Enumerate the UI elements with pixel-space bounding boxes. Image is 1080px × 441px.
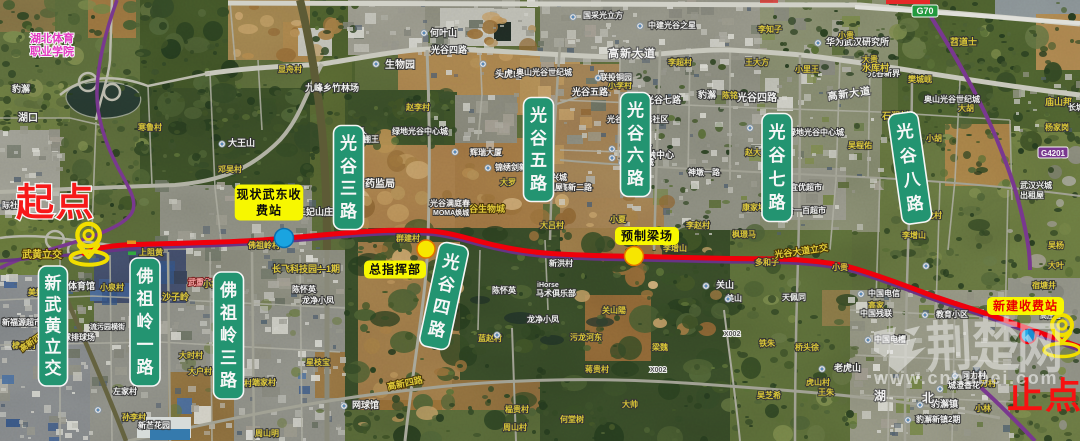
svg-text:大胡: 大胡 [958, 103, 974, 113]
svg-text:交: 交 [45, 358, 62, 378]
svg-text:湖北体育: 湖北体育 [30, 31, 74, 45]
svg-text:大罗: 大罗 [500, 177, 516, 187]
svg-text:星枝宝: 星枝宝 [306, 357, 330, 367]
svg-text:王朱: 王朱 [818, 387, 835, 397]
svg-text:黄: 黄 [45, 316, 62, 336]
svg-text:大户村: 大户村 [188, 366, 212, 376]
svg-text:龙净小凤: 龙净小凤 [301, 295, 334, 305]
svg-text:枫璟马: 枫璟马 [732, 229, 756, 239]
svg-text:显舟村: 显舟村 [278, 64, 302, 74]
svg-text:光谷满庭春: 光谷满庭春 [429, 198, 470, 208]
svg-text:谷: 谷 [627, 124, 645, 143]
svg-text:网球馆: 网球馆 [352, 399, 379, 410]
svg-text:iHorse: iHorse [537, 282, 559, 289]
svg-text:光谷四路: 光谷四路 [430, 44, 468, 55]
svg-text:大叶: 大叶 [1048, 260, 1064, 270]
svg-text:路: 路 [530, 173, 548, 193]
svg-text:光: 光 [768, 122, 786, 142]
svg-text:李赵村: 李赵村 [685, 220, 710, 230]
svg-text:豹澥: 豹澥 [11, 83, 30, 94]
svg-text:上阻黄: 上阻黄 [139, 247, 163, 257]
svg-text:祖: 祖 [136, 289, 154, 309]
svg-text:国采光立方: 国采光立方 [583, 10, 623, 20]
svg-text:李增山: 李增山 [901, 230, 926, 240]
svg-text:职业学院: 职业学院 [30, 44, 74, 58]
svg-text:中国残联: 中国残联 [860, 308, 892, 318]
svg-text:赵李村: 赵李村 [405, 102, 430, 112]
svg-text:北: 北 [922, 390, 934, 405]
svg-text:现状武东收: 现状武东收 [236, 187, 301, 202]
svg-text:一: 一 [137, 335, 154, 354]
svg-text:MOMA焕城: MOMA焕城 [433, 208, 469, 217]
svg-text:谷: 谷 [769, 146, 787, 165]
svg-text:六: 六 [627, 145, 644, 165]
svg-text:小贵: 小贵 [831, 262, 848, 272]
svg-text:端家村: 端家村 [252, 377, 276, 387]
svg-text:谷: 谷 [530, 129, 548, 148]
svg-text:路: 路 [627, 168, 645, 188]
svg-text:光谷四路: 光谷四路 [736, 91, 778, 104]
svg-text:邓吴村: 邓吴村 [217, 164, 242, 174]
svg-text:新: 新 [45, 273, 62, 293]
svg-text:豹澥镇: 豹澥镇 [930, 398, 958, 409]
svg-text:关山: 关山 [716, 279, 734, 290]
svg-text:宜优超市: 宜优超市 [790, 182, 822, 192]
svg-text:三: 三 [220, 349, 237, 368]
svg-text:路: 路 [220, 370, 238, 390]
svg-text:新福源超市: 新福源超市 [2, 317, 42, 327]
svg-text:绿地光谷中心城: 绿地光谷中心城 [392, 126, 448, 136]
svg-text:污龙河东: 污龙河东 [570, 332, 602, 342]
svg-text:九峰乡竹林场: 九峰乡竹林场 [304, 82, 359, 93]
svg-text:宿塘井: 宿塘井 [1032, 280, 1056, 290]
svg-text:联投铜园: 联投铜园 [600, 72, 632, 82]
svg-text:左家村: 左家村 [112, 386, 137, 396]
svg-text:李超村: 李超村 [667, 57, 692, 67]
svg-text:华为武汉研究所: 华为武汉研究所 [826, 36, 889, 47]
svg-text:光: 光 [894, 120, 915, 142]
svg-text:小里王: 小里王 [794, 64, 819, 74]
svg-text:沙子岭: 沙子岭 [162, 291, 189, 302]
svg-text:光: 光 [339, 133, 357, 153]
svg-text:周山明: 周山明 [255, 428, 279, 438]
svg-text:辉瑞大厦: 辉瑞大厦 [470, 147, 503, 157]
svg-text:苕道士: 苕道士 [950, 36, 977, 47]
svg-text:吴芝希: 吴芝希 [757, 390, 781, 400]
svg-text:锦绣剑新: 锦绣剑新 [495, 162, 527, 172]
svg-text:豹澥: 豹澥 [697, 89, 716, 100]
svg-text:豹澥新镇2期: 豹澥新镇2期 [915, 414, 960, 424]
svg-text:路: 路 [137, 357, 155, 377]
svg-text:陈铭: 陈铭 [722, 90, 738, 100]
svg-text:马术俱乐部: 马术俱乐部 [536, 288, 576, 298]
svg-text:岭: 岭 [220, 325, 237, 345]
svg-text:寒鲁村: 寒鲁村 [137, 122, 162, 132]
svg-text:小泉村: 小泉村 [99, 282, 124, 292]
svg-text:武黄立交: 武黄立交 [22, 248, 62, 261]
svg-text:谷: 谷 [340, 157, 358, 176]
svg-text:体育馆: 体育馆 [68, 280, 95, 291]
svg-text:立: 立 [45, 337, 62, 357]
svg-text:预制梁场: 预制梁场 [621, 228, 673, 243]
svg-text:小胡: 小胡 [925, 133, 942, 143]
svg-text:关山陽: 关山陽 [602, 305, 626, 315]
svg-text:陈怀英: 陈怀英 [492, 285, 517, 295]
svg-text:湖口: 湖口 [18, 111, 38, 124]
svg-text:群建村: 群建村 [395, 233, 420, 243]
svg-text:李知子: 李知子 [757, 24, 782, 34]
svg-text:湖: 湖 [874, 388, 886, 403]
svg-text:总指挥部: 总指挥部 [369, 262, 421, 277]
svg-text:周山村: 周山村 [503, 422, 527, 432]
svg-text:中国电信: 中国电信 [868, 288, 900, 298]
svg-text:X002: X002 [650, 367, 666, 374]
svg-text:桥头徐: 桥头徐 [795, 342, 819, 352]
svg-text:老虎山: 老虎山 [833, 362, 861, 373]
svg-text:樊城岘: 樊城岘 [908, 74, 932, 84]
svg-text:武: 武 [45, 294, 62, 314]
svg-text:三: 三 [340, 179, 357, 198]
svg-text:G70: G70 [916, 6, 933, 16]
svg-text:王大方: 王大方 [745, 57, 769, 67]
svg-text:中建光谷之星: 中建光谷之星 [648, 20, 696, 30]
svg-text:出租屋: 出租屋 [1020, 190, 1044, 200]
svg-text:大王山: 大王山 [228, 137, 255, 148]
svg-text:绿地光谷中心城: 绿地光谷中心城 [788, 127, 844, 137]
svg-text:佛: 佛 [219, 280, 237, 300]
svg-text:何堂树: 何堂树 [560, 414, 584, 424]
svg-text:奥山光谷世纪城: 奥山光谷世纪城 [515, 67, 572, 77]
svg-text:新建收费站: 新建收费站 [993, 298, 1058, 313]
svg-text:奥山光谷世纪城: 奥山光谷世纪城 [923, 94, 980, 104]
svg-text:虎山村: 虎山村 [806, 377, 830, 387]
svg-text:流污园横街: 流污园横街 [90, 322, 125, 331]
svg-text:生物园: 生物园 [385, 58, 415, 71]
svg-text:铁朱: 铁朱 [759, 338, 776, 348]
svg-text:费站: 费站 [256, 202, 282, 217]
svg-text:长城: 长城 [1068, 102, 1080, 112]
svg-text:路: 路 [769, 192, 787, 212]
svg-text:X002: X002 [724, 331, 740, 338]
svg-text:G4201: G4201 [1041, 149, 1066, 158]
svg-text:路: 路 [340, 201, 358, 221]
svg-text:高新二路: 高新二路 [560, 182, 593, 192]
svg-text:小贵: 小贵 [837, 30, 854, 40]
svg-text:梁魏: 梁魏 [651, 342, 668, 352]
svg-text:何叶山: 何叶山 [430, 27, 457, 38]
svg-text:大吕村: 大吕村 [540, 220, 564, 230]
svg-text:新芒花园: 新芒花园 [138, 420, 170, 430]
svg-text:七: 七 [769, 170, 786, 189]
svg-text:蒋贵村: 蒋贵村 [585, 364, 609, 374]
svg-text:光: 光 [529, 105, 547, 125]
svg-text:武汉兴城: 武汉兴城 [1020, 180, 1052, 190]
svg-text:高新大道: 高新大道 [608, 46, 656, 60]
svg-text:起点: 起点 [16, 183, 95, 225]
svg-text:新洪村: 新洪村 [549, 258, 573, 268]
svg-text:天佩同: 天佩同 [782, 292, 806, 302]
svg-text:杨家岗: 杨家岗 [1045, 122, 1069, 132]
svg-text:龙净小凤: 龙净小凤 [526, 314, 559, 324]
svg-text:小林: 小林 [974, 403, 991, 413]
svg-text:吴程佑: 吴程佑 [848, 140, 872, 150]
svg-text:神墩一路: 神墩一路 [688, 167, 721, 177]
svg-text:榀贵村: 榀贵村 [505, 404, 529, 414]
svg-text:五: 五 [530, 151, 547, 170]
svg-text:www.cnhubei.com: www.cnhubei.com [873, 368, 1058, 388]
svg-text:大贵: 大贵 [862, 54, 878, 64]
svg-text:吴杨: 吴杨 [1048, 240, 1064, 250]
svg-text:药监局: 药监局 [365, 177, 395, 190]
svg-text:小夏: 小夏 [609, 214, 627, 224]
svg-text:陈怀英: 陈怀英 [292, 284, 317, 294]
svg-text:光谷五路: 光谷五路 [571, 86, 609, 97]
svg-text:大帅: 大帅 [622, 399, 638, 409]
svg-text:佛: 佛 [136, 266, 154, 286]
svg-text:大时村: 大时村 [179, 350, 203, 360]
svg-text:光: 光 [626, 100, 644, 120]
svg-text:岭: 岭 [137, 312, 154, 332]
svg-text:长飞科技园—1期: 长飞科技园—1期 [272, 263, 340, 274]
svg-text:祖: 祖 [219, 302, 237, 322]
